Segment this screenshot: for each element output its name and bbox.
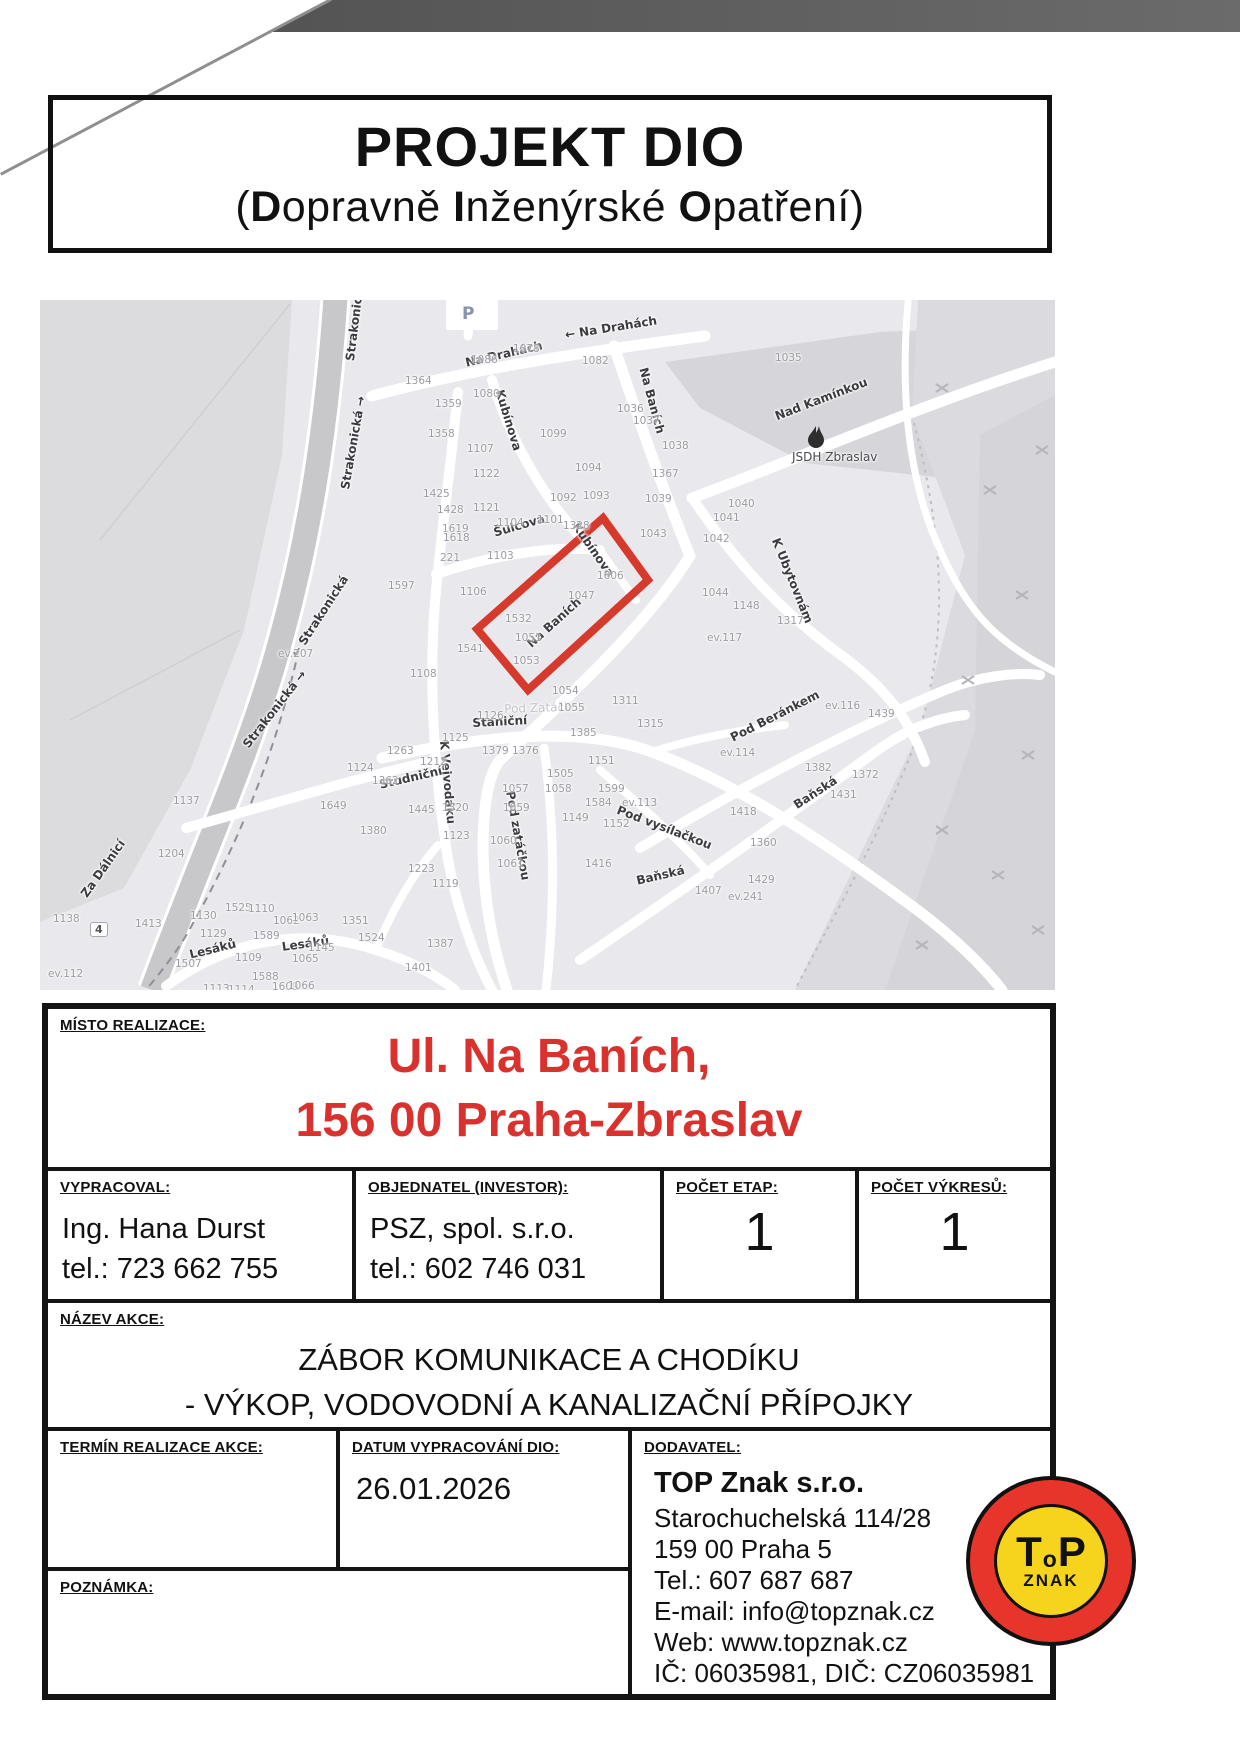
title-block-table: MÍSTO REALIZACE: Ul. Na Baních, 156 00 P… [42, 1003, 1056, 1700]
house-number: 1223 [408, 863, 435, 875]
location-line-1: Ul. Na Baních, [48, 1025, 1050, 1089]
house-number: 1315 [637, 718, 664, 730]
house-number: 1080 [473, 388, 500, 400]
page-subtitle-part: patření) [712, 183, 864, 231]
street-label: P [462, 304, 474, 324]
house-number: 1044 [702, 587, 729, 599]
row-project-info: VYPRACOVAL: Ing. Hana Durst tel.: 723 66… [48, 1171, 1050, 1303]
house-number: 1122 [473, 468, 500, 480]
house-number: 1035 [775, 352, 802, 364]
house-number: 1107 [467, 443, 494, 455]
house-number: 1589 [253, 930, 280, 942]
house-number: 1416 [585, 858, 612, 870]
house-number: 1114 [228, 984, 255, 990]
dodavatel-line: IČ: 06035981, DIČ: CZ06035981 [654, 1658, 1034, 1689]
house-number: 1126 [477, 710, 504, 722]
logo-letter-o: o [1043, 1548, 1057, 1571]
house-number: 1445 [408, 804, 435, 816]
page-subtitle-part: nženýrské [466, 183, 679, 231]
house-number: 1061 [497, 858, 524, 870]
street-label: JSDH Zbraslav [792, 450, 877, 464]
house-number: 1376 [512, 745, 539, 757]
cell-poznamka: POZNÁMKA: [48, 1571, 628, 1694]
house-number: 1037 [633, 415, 660, 427]
house-number: 1413 [135, 918, 162, 930]
house-number: 1038 [662, 440, 689, 452]
title-box: PROJEKT DIO (Dopravně Inženýrské Opatřen… [48, 95, 1052, 253]
datum-value: 26.01.2026 [356, 1471, 511, 1507]
house-number: 1060 [490, 835, 517, 847]
page-subtitle-part: opravně [282, 183, 453, 231]
cell-pocet-vykresu: POČET VÝKRESŮ: 1 [855, 1171, 1050, 1299]
house-number: 1507 [175, 958, 202, 970]
house-number: 1152 [603, 818, 630, 830]
house-number: 1382 [805, 762, 832, 774]
house-number: ev.117 [707, 632, 742, 644]
pocet-vykresu-value: 1 [859, 1201, 1050, 1263]
pocet-etap-label: POČET ETAP: [676, 1179, 778, 1196]
house-number: 1138 [53, 913, 80, 925]
cell-termin-realizace: TERMÍN REALIZACE AKCE: [48, 1431, 340, 1571]
house-number: 1428 [437, 504, 464, 516]
house-number: 1379 [482, 745, 509, 757]
page-subtitle-part: D [250, 183, 282, 231]
street-label: ← Strakonická [288, 573, 351, 660]
house-number: 1606 [597, 570, 624, 582]
house-number: 1099 [540, 428, 567, 440]
cell-pocet-etap: POČET ETAP: 1 [660, 1171, 855, 1299]
logo-znak-text: ZNAK [1023, 1571, 1078, 1591]
row-bottom: TERMÍN REALIZACE AKCE: DATUM VYPRACOVÁNÍ… [48, 1431, 1050, 1694]
house-number: 1263 [387, 745, 414, 757]
house-number: 1418 [730, 806, 757, 818]
house-number: 1524 [358, 932, 385, 944]
house-number: 1204 [158, 848, 185, 860]
row-misto-realizace: MÍSTO REALIZACE: Ul. Na Baních, 156 00 P… [48, 1009, 1050, 1171]
house-number: 1320 [442, 802, 469, 814]
house-number: 1541 [457, 643, 484, 655]
house-number: 1039 [645, 493, 672, 505]
street-label: K Ubytovnám [769, 536, 816, 625]
house-number: 1055 [558, 702, 585, 714]
dodavatel-company: TOP Znak s.r.o. [654, 1467, 864, 1500]
map-labels-layer: StrakonickáStrakonická →← StrakonickáStr… [40, 300, 1055, 990]
house-number: 1359 [435, 398, 462, 410]
street-label: Strakonická → [338, 395, 368, 490]
house-number: 1145 [308, 942, 335, 954]
pocet-vykresu-label: POČET VÝKRESŮ: [871, 1179, 1007, 1196]
page-title: PROJEKT DIO [53, 114, 1047, 179]
house-number: ev.112 [48, 968, 83, 980]
house-number: ev.113 [622, 797, 657, 809]
house-number: 1125 [442, 732, 469, 744]
house-number: 1360 [750, 837, 777, 849]
action-name-line-2: - VÝKOP, VODOVODNÍ A KANALIZAČNÍ PŘÍPOJK… [48, 1382, 1050, 1427]
house-number: 1078 [513, 343, 540, 355]
house-number: 1505 [547, 768, 574, 780]
house-number: 1051 [515, 632, 542, 644]
location-map: StrakonickáStrakonická →← StrakonickáStr… [40, 300, 1055, 990]
house-number: 1065 [292, 953, 319, 965]
house-number: ev.116 [825, 700, 860, 712]
house-number: 1123 [443, 830, 470, 842]
house-number: 1113 [203, 983, 230, 990]
house-number: 1367 [652, 468, 679, 480]
house-number: 1082 [582, 355, 609, 367]
house-number: 1358 [428, 428, 455, 440]
house-number: 1101 [537, 514, 564, 526]
vypracoval-label: VYPRACOVAL: [60, 1179, 170, 1196]
street-label: Pod Beránkem [728, 688, 822, 745]
house-number: 1058 [545, 783, 572, 795]
street-label: Baňská [635, 863, 686, 888]
house-number: 1041 [713, 512, 740, 524]
dodavatel-line: Web: www.topznak.cz [654, 1627, 1034, 1658]
scanned-document-page: PROJEKT DIO (Dopravně Inženýrské Opatřen… [0, 0, 1240, 1754]
dodavatel-label: DODAVATEL: [644, 1439, 741, 1456]
page-subtitle: (Dopravně Inženýrské Opatření) [53, 183, 1047, 232]
house-number: 1119 [432, 878, 459, 890]
street-label: ← Na Drahách [564, 313, 658, 341]
house-number: 1104 [497, 517, 524, 529]
vypracoval-tel: tel.: 723 662 755 [62, 1249, 278, 1289]
street-label: Za Dálnicí [78, 837, 128, 900]
street-label: Strakonická → [240, 668, 309, 751]
house-number: 1137 [173, 795, 200, 807]
house-number: 1054 [552, 685, 579, 697]
house-number: 1148 [733, 600, 760, 612]
page-subtitle-part: O [678, 183, 712, 231]
house-number: 1372 [852, 769, 879, 781]
termin-label: TERMÍN REALIZACE AKCE: [60, 1439, 263, 1456]
house-number: 1599 [598, 783, 625, 795]
cell-objednatel: OBJEDNATEL (INVESTOR): PSZ, spol. s.r.o.… [352, 1171, 660, 1299]
house-number: 1385 [570, 727, 597, 739]
objednatel-label: OBJEDNATEL (INVESTOR): [368, 1179, 568, 1196]
page-subtitle-part: ( [235, 183, 250, 231]
house-number: 1108 [410, 668, 437, 680]
top-znak-logo: T o P ZNAK [966, 1476, 1136, 1646]
house-number: 1387 [427, 938, 454, 950]
street-label: Strakonická [343, 300, 367, 362]
house-number: 1439 [868, 708, 895, 720]
cell-vypracoval: VYPRACOVAL: Ing. Hana Durst tel.: 723 66… [48, 1171, 352, 1299]
house-number: 1124 [347, 762, 374, 774]
objednatel-name: PSZ, spol. s.r.o. [370, 1209, 586, 1249]
vypracoval-name: Ing. Hana Durst [62, 1209, 278, 1249]
street-label: Nad Kamínkou [773, 375, 869, 423]
house-number: 1212 [420, 756, 447, 768]
house-number: 1597 [388, 580, 415, 592]
house-number: 1063 [292, 912, 319, 924]
house-number: 1380 [360, 825, 387, 837]
house-number: ev.114 [720, 747, 755, 759]
datum-label: DATUM VYPRACOVÁNÍ DIO: [352, 1439, 559, 1456]
house-number: 1042 [703, 533, 730, 545]
page-subtitle-part: I [453, 183, 465, 231]
house-number: 1110 [248, 903, 275, 915]
poznamka-label: POZNÁMKA: [60, 1579, 153, 1596]
logo-letter-p: P [1058, 1531, 1086, 1573]
house-number: 1328 [563, 520, 590, 532]
house-number: 1121 [473, 502, 500, 514]
house-number: 1036 [617, 403, 644, 415]
house-number: 221 [440, 552, 460, 564]
house-number: 1047 [568, 590, 595, 602]
house-number: 1351 [342, 915, 369, 927]
pocet-etap-value: 1 [664, 1201, 855, 1263]
house-number: 1407 [695, 885, 722, 897]
cell-datum-vypracovani: DATUM VYPRACOVÁNÍ DIO: 26.01.2026 [340, 1431, 628, 1571]
house-number: 1057 [502, 783, 529, 795]
house-number: 1130 [190, 910, 217, 922]
action-name-line-1: ZÁBOR KOMUNIKACE A CHODÍKU [48, 1337, 1050, 1382]
location-line-2: 156 00 Praha-Zbraslav [48, 1089, 1050, 1153]
house-number: 1425 [423, 488, 450, 500]
objednatel-tel: tel.: 602 746 031 [370, 1249, 586, 1289]
nazev-akce-label: NÁZEV AKCE: [60, 1311, 164, 1328]
house-number: 1364 [405, 375, 432, 387]
house-number: 1584 [585, 797, 612, 809]
house-number: ev.241 [728, 891, 763, 903]
house-number: 1618 [443, 532, 470, 544]
row-nazev-akce: NÁZEV AKCE: ZÁBOR KOMUNIKACE A CHODÍKU -… [48, 1303, 1050, 1431]
house-number: 1053 [513, 655, 540, 667]
house-number: 1649 [320, 800, 347, 812]
house-number: 1311 [612, 695, 639, 707]
house-number: 1106 [460, 586, 487, 598]
house-number: 1401 [405, 962, 432, 974]
house-number: 1103 [487, 550, 514, 562]
house-number: 1151 [588, 755, 615, 767]
house-number: ev.207 [278, 648, 313, 660]
house-number: 1149 [562, 812, 589, 824]
house-number: 1109 [235, 952, 262, 964]
house-number: 1066 [288, 980, 315, 990]
house-number: 1059 [503, 802, 530, 814]
house-number: 1431 [830, 789, 857, 801]
house-number: 1086 [471, 354, 498, 366]
house-number: 1040 [728, 498, 755, 510]
house-number: 1129 [200, 928, 227, 940]
house-number: 1532 [505, 613, 532, 625]
house-number: 1092 [550, 492, 577, 504]
house-number: 1429 [748, 874, 775, 886]
house-number: 1094 [575, 462, 602, 474]
house-number: 1093 [583, 490, 610, 502]
street-label: 4 [90, 922, 108, 937]
house-number: 1317 [777, 615, 804, 627]
logo-letter-t: T [1016, 1531, 1042, 1573]
house-number: 1043 [640, 528, 667, 540]
house-number: 1362 [372, 775, 399, 787]
